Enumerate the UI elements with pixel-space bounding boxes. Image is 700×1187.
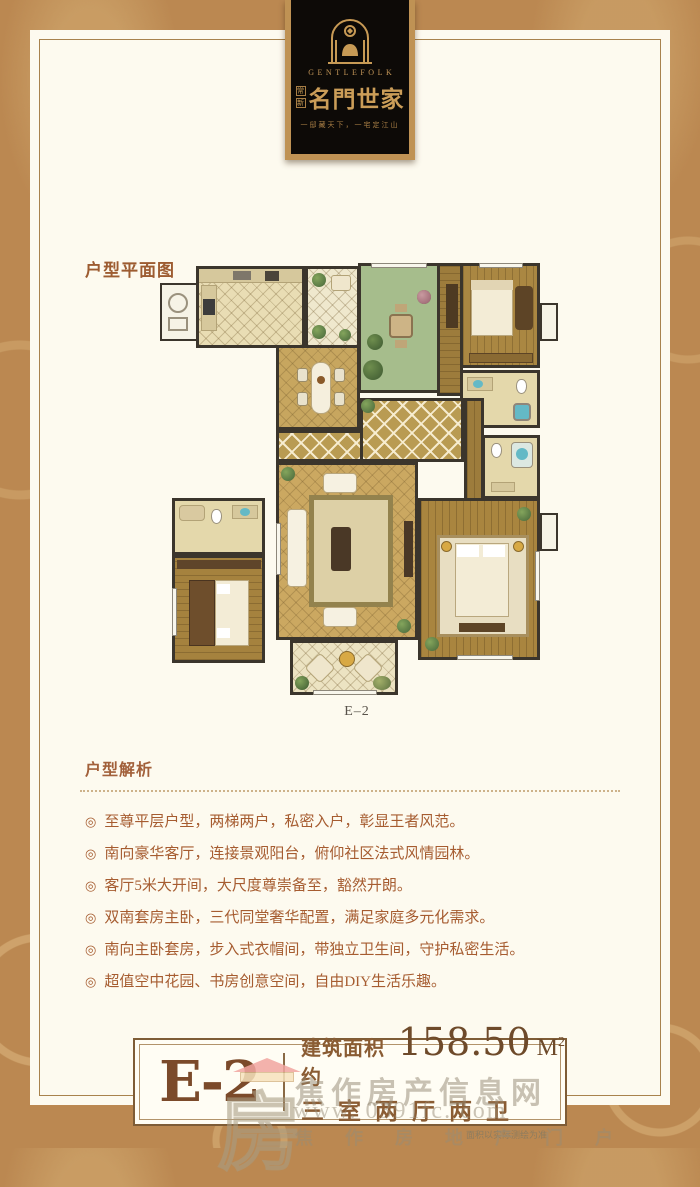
poster-page: { "logo": { "brand_en": "GENTLEFOLK", "s… bbox=[0, 0, 700, 1148]
analysis-item-text: 双南套房主卧，三代同堂奢华配置，满足家庭多元化需求。 bbox=[104, 910, 494, 926]
kitchen-room bbox=[196, 266, 305, 348]
floorplan-drawing bbox=[152, 258, 562, 703]
area-unit: M2 bbox=[537, 1035, 565, 1062]
analysis-item: ◎南向主卧套房，步入式衣帽间，带独立卫生间，守护私密生活。 bbox=[85, 934, 620, 966]
bullet-icon: ◎ bbox=[85, 846, 96, 861]
bullet-icon: ◎ bbox=[85, 974, 96, 989]
sky-garden bbox=[358, 263, 440, 393]
analysis-item: ◎双南套房主卧，三代同堂奢华配置，满足家庭多元化需求。 bbox=[85, 902, 620, 934]
bullet-icon: ◎ bbox=[85, 878, 96, 893]
analysis-item-text: 南向主卧套房，步入式衣帽间，带独立卫生间，守护私密生活。 bbox=[104, 942, 524, 958]
ac-platform-left bbox=[160, 283, 198, 341]
brand-name-en: GENTLEFOLK bbox=[305, 68, 396, 77]
corridor-east bbox=[464, 398, 484, 502]
ac-platform-right-mid bbox=[540, 513, 558, 551]
south-balcony bbox=[290, 640, 398, 695]
dotted-divider bbox=[80, 790, 620, 792]
analysis-item-text: 超值空中花园、书房创意空间，自由DIY生活乐趣。 bbox=[104, 974, 446, 990]
analysis-item: ◎至尊平层户型，两梯两户，私密入户，彰显王者风范。 bbox=[85, 806, 620, 838]
bedroom-north bbox=[460, 263, 540, 368]
brand-tagline: 一邸藏天下，一宅定江山 bbox=[301, 120, 400, 130]
analysis-bullet-list: ◎至尊平层户型，两梯两户，私密入户，彰显王者风范。 ◎南向豪华客厅，连接景观阳台… bbox=[85, 806, 620, 998]
disclaimer-text: 面积以实际测绘为准 bbox=[301, 1128, 565, 1141]
brand-name-cn: 名門世家 bbox=[309, 80, 405, 114]
bedroom-west bbox=[172, 555, 265, 663]
living-room bbox=[276, 462, 418, 640]
master-bedroom bbox=[418, 498, 540, 660]
analysis-item: ◎客厅5米大开间，大尺度尊崇备至，豁然开朗。 bbox=[85, 870, 620, 902]
analysis-item-text: 至尊平层户型，两梯两户，私密入户，彰显王者风范。 bbox=[104, 814, 464, 830]
foyer-garden-nook bbox=[305, 266, 360, 348]
vertical-divider bbox=[283, 1053, 285, 1111]
seal-char-top: 常 bbox=[296, 86, 306, 96]
area-value: 158.50 bbox=[398, 1024, 531, 1060]
master-bathroom bbox=[482, 435, 540, 499]
seal-char-bottom: 新 bbox=[296, 98, 306, 108]
analysis-item: ◎超值空中花园、书房创意空间，自由DIY生活乐趣。 bbox=[85, 966, 620, 998]
bullet-icon: ◎ bbox=[85, 910, 96, 925]
bathroom-west bbox=[172, 498, 265, 555]
corridor bbox=[360, 398, 464, 462]
unit-summary-box: E-2 建筑面积约 158.50 M2 三室两厅两卫 面积以实际测绘为准 bbox=[133, 1038, 567, 1126]
dining-room bbox=[276, 345, 360, 430]
room-config-label: 三室两厅两卫 bbox=[301, 1092, 565, 1126]
ac-platform-right-top bbox=[540, 303, 558, 341]
analysis-item-text: 客厅5米大开间，大尺度尊崇备至，豁然开朗。 bbox=[104, 878, 412, 894]
unit-code: E-2 bbox=[135, 1049, 283, 1115]
arch-emblem-icon bbox=[324, 18, 376, 64]
bullet-icon: ◎ bbox=[85, 942, 96, 957]
brand-seal: 常 新 bbox=[296, 85, 306, 109]
analysis-item-text: 南向豪华客厅，连接景观阳台，俯仰社区法式风情园林。 bbox=[104, 846, 479, 862]
brand-badge: GENTLEFOLK 常 新 名門世家 一邸藏天下，一宅定江山 bbox=[285, 0, 415, 160]
analysis-section-title: 户型解析 bbox=[85, 756, 153, 780]
bullet-icon: ◎ bbox=[85, 814, 96, 829]
corridor-west bbox=[276, 430, 363, 462]
floorplan-caption: E–2 bbox=[152, 704, 562, 720]
analysis-item: ◎南向豪华客厅，连接景观阳台，俯仰社区法式风情园林。 bbox=[85, 838, 620, 870]
area-prefix-label: 建筑面积约 bbox=[301, 1032, 394, 1090]
